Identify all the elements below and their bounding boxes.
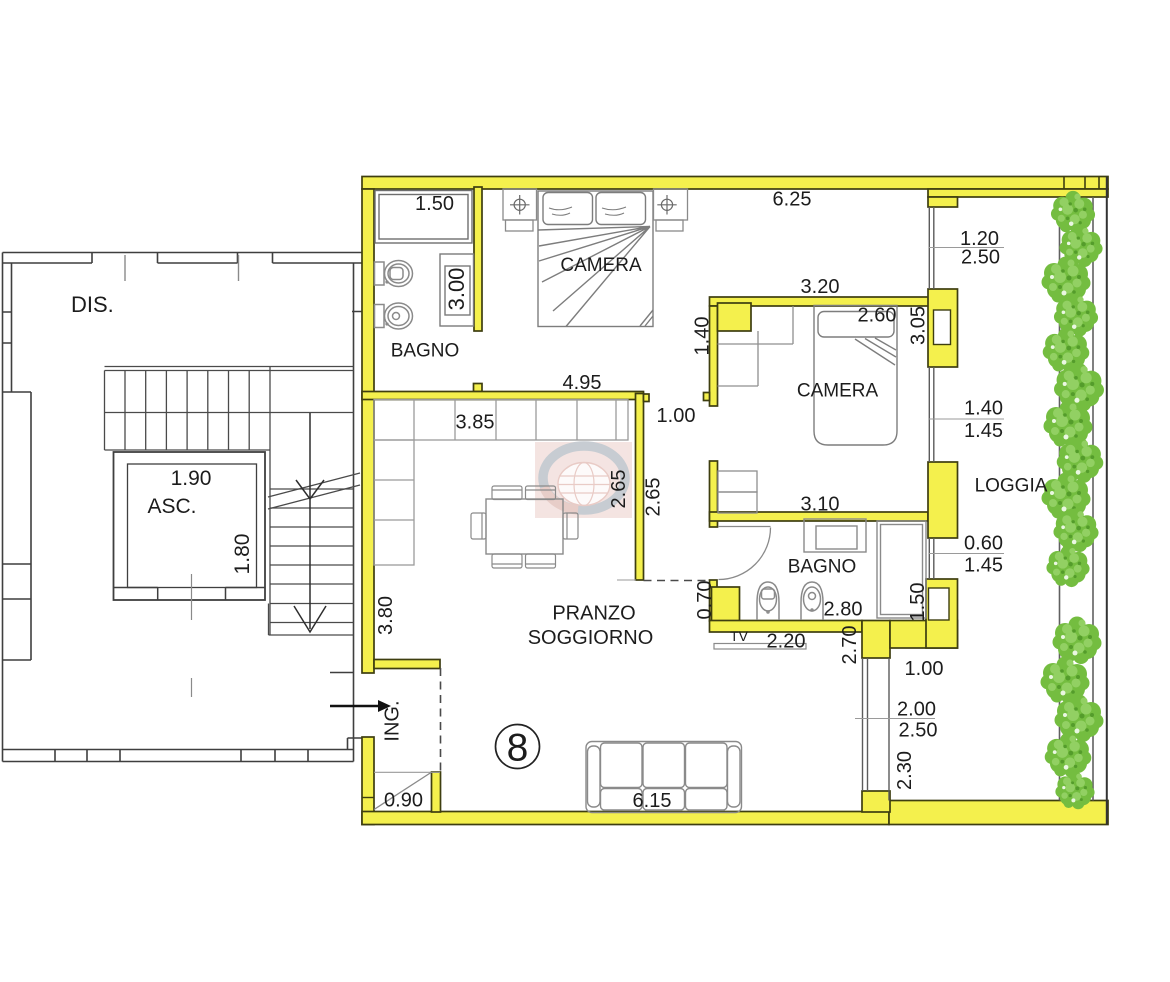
- svg-text:LOGGIA: LOGGIA: [975, 476, 1048, 497]
- svg-text:2.50: 2.50: [899, 720, 938, 742]
- svg-text:1.50: 1.50: [415, 193, 454, 215]
- svg-text:2.80: 2.80: [824, 599, 863, 621]
- svg-text:CAMERA: CAMERA: [797, 381, 879, 402]
- svg-text:DIS.: DIS.: [71, 292, 114, 317]
- svg-text:1.80: 1.80: [231, 534, 254, 575]
- svg-text:1.00: 1.00: [657, 405, 696, 427]
- svg-text:3.80: 3.80: [375, 596, 397, 635]
- svg-text:0.90: 0.90: [384, 790, 423, 812]
- svg-text:0.70: 0.70: [694, 581, 716, 620]
- svg-text:1.40: 1.40: [964, 398, 1003, 420]
- svg-text:2.30: 2.30: [894, 751, 916, 790]
- svg-text:2.65: 2.65: [643, 478, 665, 517]
- svg-text:0.60: 0.60: [964, 533, 1003, 555]
- svg-text:2.50: 2.50: [961, 247, 1000, 269]
- svg-text:1.45: 1.45: [964, 555, 1003, 577]
- svg-text:BAGNO: BAGNO: [788, 557, 857, 578]
- svg-text:3.20: 3.20: [801, 276, 840, 298]
- svg-text:BAGNO: BAGNO: [391, 341, 460, 362]
- svg-text:1.45: 1.45: [964, 420, 1003, 442]
- svg-text:3.85: 3.85: [456, 412, 495, 434]
- svg-text:3.10: 3.10: [801, 494, 840, 516]
- svg-text:2.20: 2.20: [767, 631, 806, 653]
- svg-text:6.15: 6.15: [633, 790, 672, 812]
- svg-text:SOGGIORNO: SOGGIORNO: [528, 627, 654, 649]
- svg-text:PRANZO: PRANZO: [552, 603, 635, 625]
- svg-text:4.95: 4.95: [563, 372, 602, 394]
- svg-text:2.70: 2.70: [839, 626, 861, 665]
- svg-text:3.05: 3.05: [908, 306, 930, 345]
- svg-text:3.00: 3.00: [444, 268, 469, 311]
- svg-text:1.90: 1.90: [171, 467, 212, 490]
- svg-text:1.40: 1.40: [692, 317, 714, 356]
- svg-text:2.00: 2.00: [897, 699, 936, 721]
- svg-text:CAMERA: CAMERA: [560, 255, 642, 276]
- svg-text:ASC.: ASC.: [147, 495, 196, 518]
- svg-text:8: 8: [507, 727, 529, 770]
- svg-text:2.60: 2.60: [858, 305, 897, 327]
- svg-text:2.65: 2.65: [608, 470, 630, 509]
- svg-text:TV: TV: [730, 628, 749, 644]
- svg-text:ING.: ING.: [382, 700, 404, 741]
- svg-text:1.50: 1.50: [907, 583, 929, 622]
- svg-text:1.00: 1.00: [905, 658, 944, 680]
- svg-text:6.25: 6.25: [773, 189, 812, 211]
